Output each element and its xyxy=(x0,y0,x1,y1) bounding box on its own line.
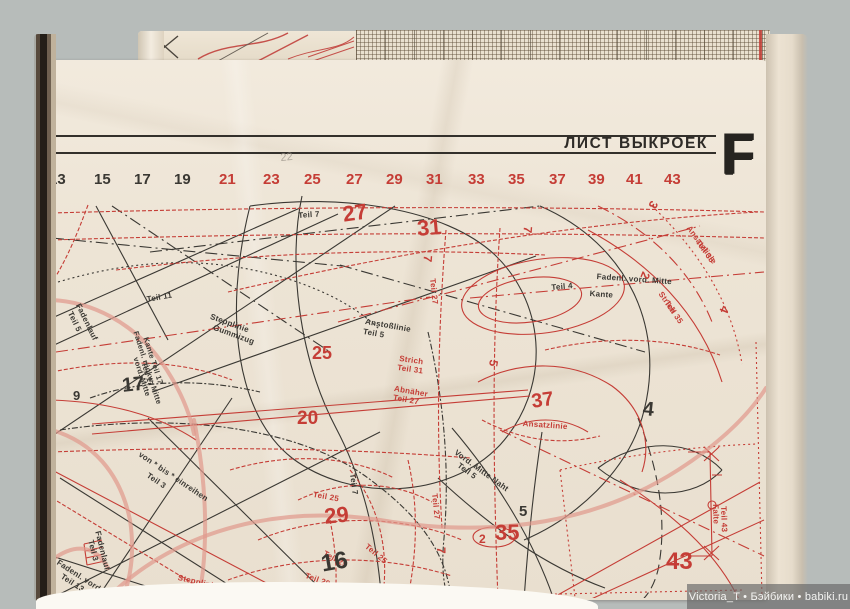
size-number: 29 xyxy=(323,501,350,529)
page-title: ЛИСТ ВЫКРОЕК xyxy=(420,135,708,152)
sheet-letter: F xyxy=(716,129,760,183)
size-number: 7 xyxy=(434,547,448,554)
pencil-note: 22 xyxy=(280,151,293,164)
header-rule-bottom xyxy=(52,152,716,154)
ruler-number: 17 xyxy=(134,171,151,188)
ruler-number: 35 xyxy=(508,171,525,188)
ruler-number: 39 xyxy=(588,171,605,188)
red-pattern-lines xyxy=(52,205,764,606)
ruler-number: 41 xyxy=(626,171,643,188)
size-number: 9 xyxy=(73,388,80,403)
ruler-number: 25 xyxy=(304,171,321,188)
size-number: 7 xyxy=(420,255,435,263)
size-number: 16 xyxy=(319,546,350,578)
ruler-number: 15 xyxy=(94,171,111,188)
watermark: Victoria_T • Бэйбики • babiki.ru xyxy=(687,584,850,609)
pattern-label: Kante xyxy=(589,289,613,300)
ruler-number: 33 xyxy=(468,171,485,188)
ruler-number: 23 xyxy=(263,171,280,188)
ruler-number: 31 xyxy=(426,171,443,188)
ruler-number: 27 xyxy=(346,171,363,188)
ruler-number: 19 xyxy=(174,171,191,188)
pattern-label: Teil 4 xyxy=(551,281,573,292)
ruler-number: 21 xyxy=(219,171,236,188)
watermark-text: Victoria_T • Бэйбики • babiki.ru xyxy=(689,591,848,603)
size-number: 4 xyxy=(642,398,655,422)
size-number: 25 xyxy=(312,343,332,364)
scanned-pattern-sheet: ЛИСТ ВЫКРОЕК F 1315171921232527293133353… xyxy=(0,0,850,609)
size-number: 31 xyxy=(416,214,443,242)
size-number: 27 xyxy=(341,199,369,228)
size-number: 2 xyxy=(479,532,486,546)
page-right-edges xyxy=(766,34,808,600)
size-number: 37 xyxy=(530,388,555,414)
pattern-label: Teil 43 xyxy=(719,506,729,532)
ruler-number: 29 xyxy=(386,171,403,188)
ruler-number: 43 xyxy=(664,171,681,188)
pink-pattern-lines xyxy=(52,300,766,606)
pattern-label: Teil 7 xyxy=(298,210,320,220)
size-number: 17 xyxy=(121,373,146,398)
size-number: 43 xyxy=(666,548,693,576)
ruler-number: 37 xyxy=(549,171,566,188)
size-number: 35 xyxy=(495,520,519,546)
size-number: 7 xyxy=(520,226,535,234)
size-number: 20 xyxy=(297,408,318,430)
size-number: 5 xyxy=(519,503,527,520)
folded-left-edge xyxy=(34,34,56,602)
